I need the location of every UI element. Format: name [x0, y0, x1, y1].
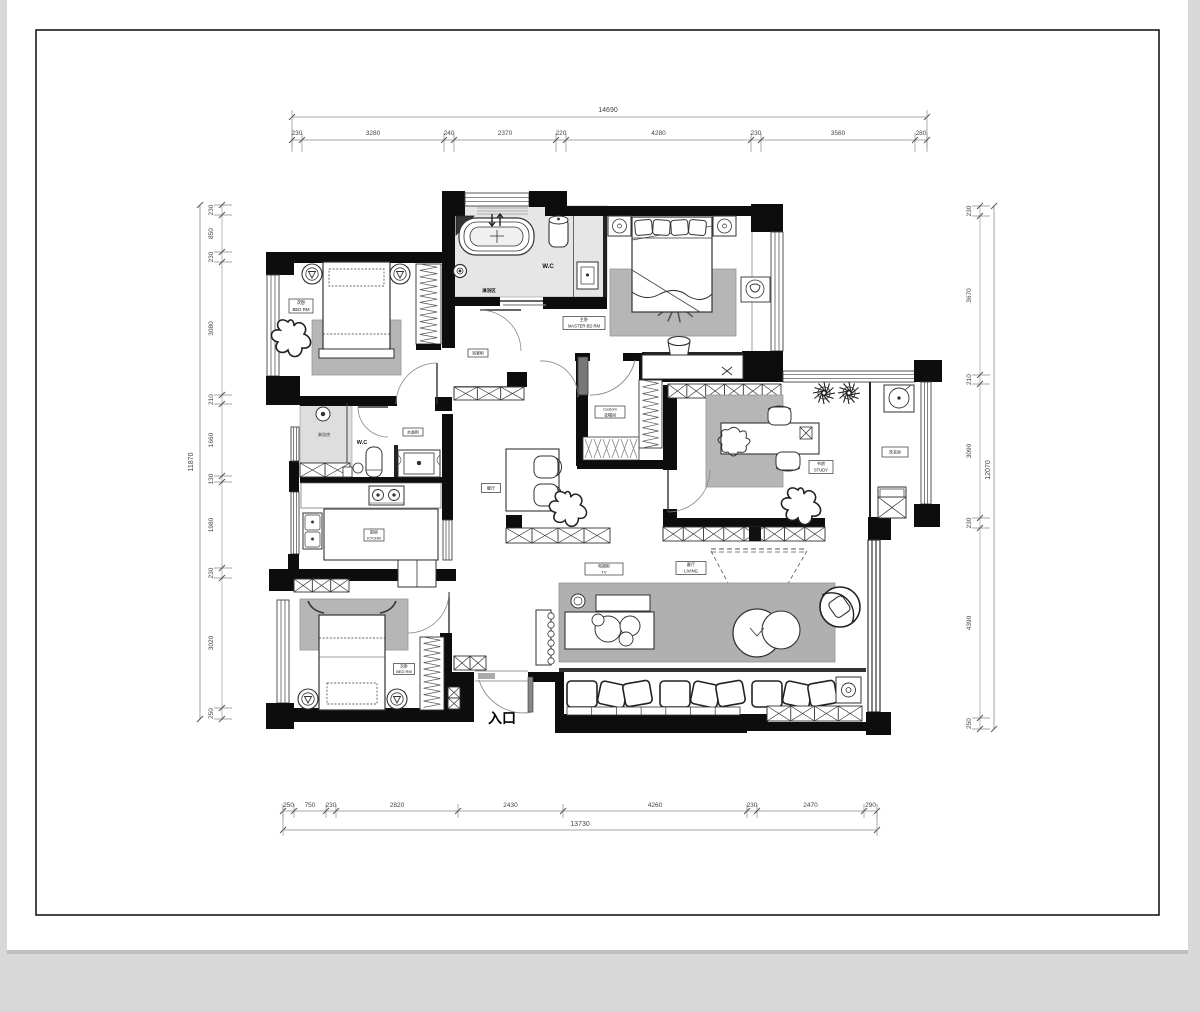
svg-text:W.C: W.C: [357, 440, 367, 446]
svg-text:2370: 2370: [498, 130, 513, 137]
svg-text:210: 210: [966, 374, 973, 385]
svg-text:250: 250: [208, 708, 215, 719]
svg-text:BED RM: BED RM: [292, 307, 309, 312]
svg-text:Custom: Custom: [603, 406, 617, 411]
svg-text:4390: 4390: [966, 615, 973, 630]
svg-text:电视柜: 电视柜: [598, 562, 610, 568]
svg-text:3090: 3090: [966, 443, 973, 458]
svg-text:12070: 12070: [985, 460, 992, 480]
svg-text:230: 230: [751, 130, 762, 137]
svg-text:210: 210: [208, 394, 215, 405]
svg-text:次卧: 次卧: [400, 663, 408, 669]
svg-text:淋浴区: 淋浴区: [482, 287, 496, 294]
svg-text:4260: 4260: [648, 802, 663, 809]
svg-text:4280: 4280: [651, 130, 666, 137]
svg-text:280: 280: [916, 130, 927, 137]
svg-text:250: 250: [283, 802, 294, 809]
svg-text:3080: 3080: [208, 321, 215, 336]
svg-text:洗衣房: 洗衣房: [889, 448, 901, 454]
svg-text:230: 230: [966, 517, 973, 528]
svg-text:STUDY: STUDY: [814, 468, 828, 473]
svg-text:3020: 3020: [208, 635, 215, 650]
svg-text:浴室柜: 浴室柜: [472, 349, 484, 355]
svg-text:KTCHN: KTCHN: [367, 535, 381, 540]
svg-text:3280: 3280: [366, 130, 381, 137]
svg-text:2470: 2470: [803, 802, 818, 809]
svg-text:次卧: 次卧: [297, 299, 306, 306]
svg-text:1980: 1980: [208, 517, 215, 532]
svg-text:240: 240: [444, 130, 455, 137]
svg-text:2430: 2430: [503, 802, 518, 809]
svg-text:BED RM: BED RM: [396, 669, 412, 674]
svg-text:衣帽间: 衣帽间: [604, 411, 616, 417]
svg-text:230: 230: [292, 130, 303, 137]
svg-text:750: 750: [305, 802, 316, 809]
svg-text:3560: 3560: [831, 130, 846, 137]
svg-text:850: 850: [208, 228, 215, 239]
svg-text:TV: TV: [601, 569, 606, 574]
svg-text:230: 230: [326, 802, 337, 809]
svg-text:230: 230: [208, 567, 215, 578]
svg-text:2820: 2820: [390, 802, 405, 809]
svg-text:290: 290: [865, 802, 876, 809]
svg-text:130: 130: [208, 473, 215, 484]
svg-text:主卧: 主卧: [580, 316, 588, 323]
svg-text:230: 230: [208, 251, 215, 262]
svg-text:13730: 13730: [570, 821, 590, 828]
svg-text:入口: 入口: [488, 710, 516, 726]
svg-text:客厅: 客厅: [687, 561, 695, 568]
svg-text:1660: 1660: [208, 432, 215, 447]
svg-text:W.C: W.C: [542, 264, 554, 270]
svg-text:250: 250: [966, 718, 973, 729]
svg-text:MASTER BD RM: MASTER BD RM: [568, 324, 601, 329]
svg-text:淋浴房: 淋浴房: [318, 431, 331, 438]
svg-text:11870: 11870: [188, 452, 195, 471]
svg-text:3670: 3670: [966, 288, 973, 303]
svg-text:厨房: 厨房: [370, 528, 378, 534]
svg-text:水盆柜: 水盆柜: [407, 428, 419, 434]
svg-text:220: 220: [556, 130, 567, 137]
svg-text:书房: 书房: [817, 460, 825, 467]
svg-text:230: 230: [747, 802, 758, 809]
svg-text:230: 230: [966, 205, 973, 216]
svg-text:230: 230: [208, 204, 215, 215]
svg-text:LIVING: LIVING: [684, 569, 698, 574]
svg-text:14690: 14690: [598, 107, 618, 114]
svg-text:餐厅: 餐厅: [487, 484, 495, 491]
